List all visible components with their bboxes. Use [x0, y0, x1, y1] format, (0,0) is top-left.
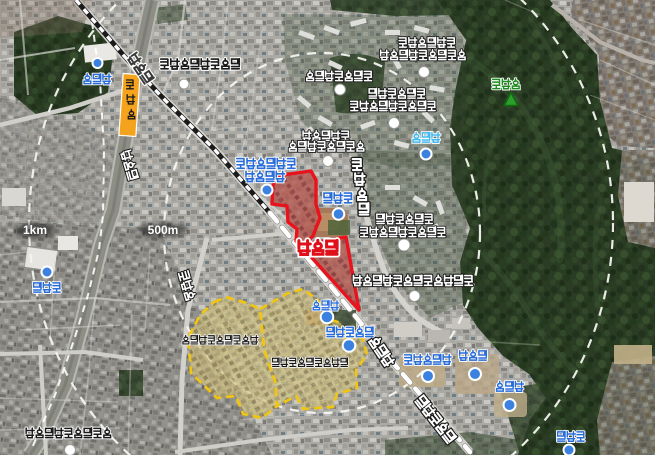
svg-text:500m: 500m: [148, 223, 179, 237]
svg-text:1km: 1km: [23, 223, 47, 237]
